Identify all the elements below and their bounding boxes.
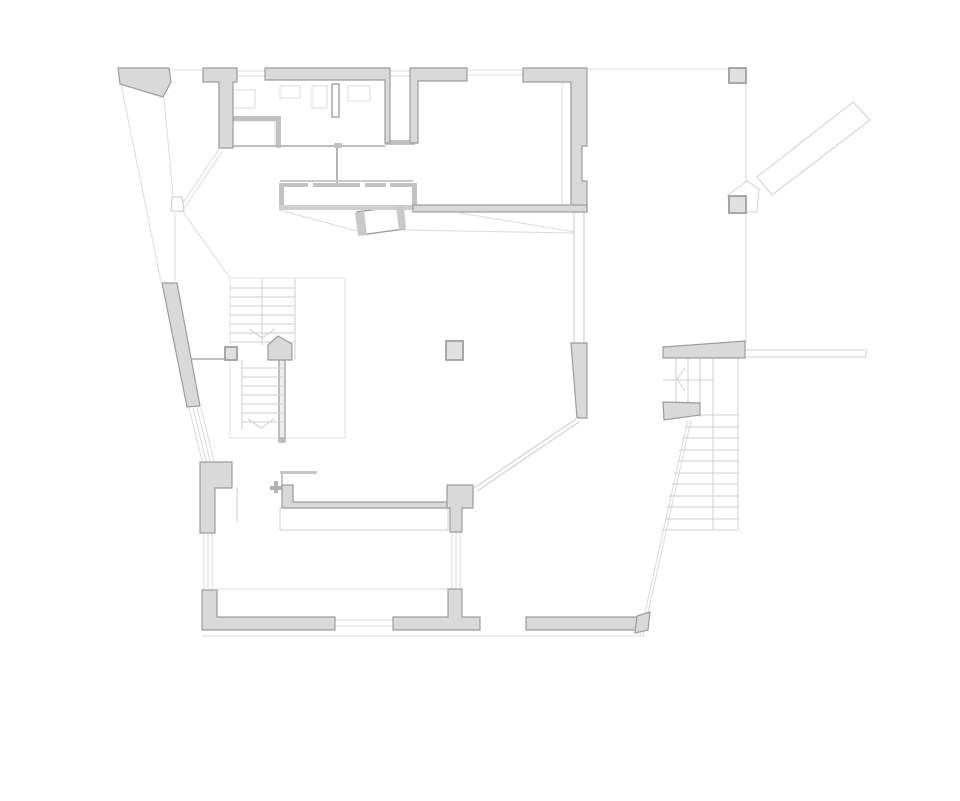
wall-west-diagonal <box>162 283 200 407</box>
fixture-outline <box>312 86 327 108</box>
divider-wall-v <box>336 147 338 185</box>
patio-band <box>284 183 308 187</box>
floor-plan-drawing <box>0 0 960 801</box>
outline-shapes <box>171 84 870 530</box>
window-strip-sw <box>189 408 202 461</box>
site-boundary-west <box>121 84 161 282</box>
wall-triangle-nw <box>118 68 171 97</box>
stair-wall-lower <box>279 360 285 442</box>
window-strip-sw <box>197 408 210 461</box>
stair-wall-cap <box>279 437 285 442</box>
entry-glazing-line-2 <box>181 152 222 213</box>
wall-wedge-lower <box>663 402 700 420</box>
window-strip-sw <box>193 408 206 461</box>
wall-lower-L-block <box>447 485 473 532</box>
entry-glazing-line-1 <box>178 149 219 210</box>
boundary-diagonal-1 <box>640 420 688 635</box>
hall-diagonal-west <box>183 212 230 278</box>
bath-bottom-line <box>230 145 385 147</box>
patio-band <box>365 183 386 187</box>
patio-band <box>390 183 412 187</box>
wall-stair-pentagon <box>268 336 292 360</box>
wall-wedge-upper <box>663 341 745 358</box>
window-sill-box <box>280 508 448 530</box>
bath-wall-h <box>228 116 281 121</box>
wall-room-bottom <box>413 205 587 212</box>
hall-diagonal-sw <box>279 210 357 231</box>
wall-bottom-right <box>526 617 646 630</box>
wall-bottom-corner-L <box>202 590 335 630</box>
boundary-diagonal-2 <box>643 420 691 635</box>
column-ne-lower <box>729 196 746 213</box>
handrail-bar <box>745 350 866 357</box>
patio-band <box>313 183 360 187</box>
landing-edge-line <box>192 358 225 360</box>
patio-wall-left <box>279 183 284 208</box>
column-stair <box>225 347 237 360</box>
floor-plan-page <box>0 0 960 801</box>
glazing-diagonal-1 <box>474 419 576 488</box>
direction-chevron <box>248 419 274 428</box>
plus-wall-v <box>274 481 278 493</box>
window-strip-sw <box>201 408 214 461</box>
fixture-outline <box>280 86 300 98</box>
pillar-outline <box>171 197 184 211</box>
wall-diagonal-end-block <box>635 612 650 633</box>
thin-walls <box>192 116 417 493</box>
hall-diagonal-se <box>404 230 574 233</box>
wall-glazing-east <box>571 343 587 418</box>
site-boundary-inner <box>164 97 173 196</box>
wall-top-b <box>410 68 467 143</box>
wall-t-nw <box>203 68 237 148</box>
wall-top-c-east <box>523 68 587 212</box>
wall-bottom-mid <box>393 589 480 630</box>
fixture-outline <box>232 90 255 108</box>
wall-sw-upper-L <box>200 462 232 533</box>
columns <box>225 68 746 360</box>
hall-diagonal-east <box>460 213 575 232</box>
bath-room-outline <box>230 121 275 146</box>
stair-lines <box>230 279 738 530</box>
column-center <box>446 341 463 360</box>
stub-bar-h <box>280 471 317 474</box>
bath-wall-v <box>276 121 281 148</box>
wall-main-lower <box>282 485 448 508</box>
fixture-outline <box>348 86 370 101</box>
glazing-diagonal-2 <box>477 422 579 491</box>
counter-line <box>280 180 413 182</box>
ramp-outline <box>757 102 870 195</box>
column-ne-upper <box>729 68 746 83</box>
hanging-wall-outline <box>332 84 339 117</box>
